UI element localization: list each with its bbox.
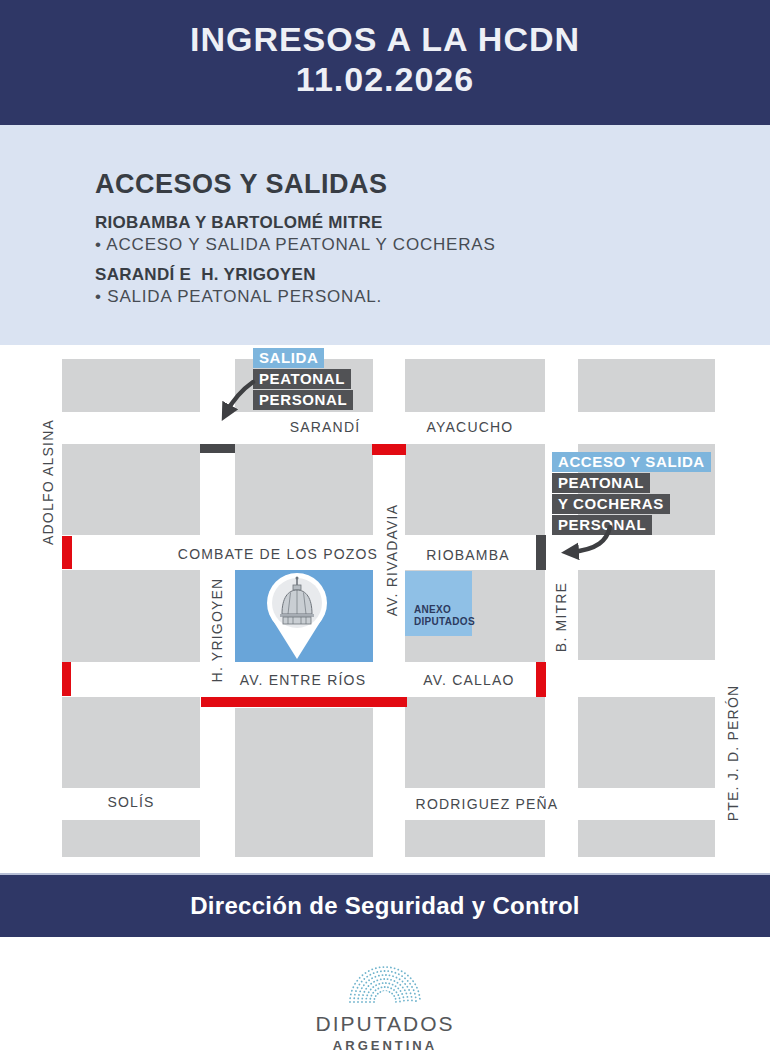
poster-root: INGRESOS A LA HCDN 11.02.2026 ACCESOS Y … [0,0,770,1062]
city-block [578,820,715,857]
closure-marker-entrerios [201,697,407,707]
access-marker-riobamba-mitre [536,535,546,570]
city-block [405,444,545,535]
footer-band: Dirección de Seguridad y Control [0,873,770,937]
callout-salida: SALIDA PEATONAL PERSONAL [253,348,353,410]
arrow-acceso-icon [552,522,622,564]
closure-marker-callao-mitre [536,662,546,697]
access-entry-heading: RIOBAMBA Y BARTOLOMÉ MITRE [95,213,383,233]
street-label-entrerios: AV. ENTRE RÍOS [240,672,367,688]
city-block [578,570,715,660]
exit-marker-sarandi-yrigoyen [200,444,235,453]
closure-marker-rivadavia-sarandi [372,444,406,455]
poster-date: 11.02.2026 [0,59,770,99]
congress-pin-icon [258,571,336,661]
city-block [62,697,200,788]
street-label-peron: PTE. J. D. PERÓN [725,685,741,822]
street-label-combate: COMBATE DE LOS POZOS [178,546,378,562]
arrow-salida-icon [205,378,261,426]
anexo-diputados-block: ANEXO DIPUTADOS [405,571,472,636]
city-block [62,570,200,662]
poster-title: INGRESOS A LA HCDN [0,0,770,59]
anexo-label: ANEXO DIPUTADOS [414,604,475,628]
logo-title: DIPUTADOS [0,1012,770,1036]
city-block [62,359,200,412]
city-block [62,820,200,857]
access-entry-detail: • SALIDA PEATONAL PERSONAL. [95,287,382,307]
header-band: INGRESOS A LA HCDN 11.02.2026 [0,0,770,125]
logo-subtitle: ARGENTINA [0,1038,770,1053]
closure-marker-entrerios-alsina [62,662,71,696]
city-block [235,708,373,857]
access-entry-detail: • ACCESO Y SALIDA PEATONAL Y COCHERAS [95,235,496,255]
closure-marker-combate-alsina [62,536,72,569]
street-label-rivadavia: AV. RIVADAVIA [384,504,400,616]
street-label-ayacucho: AYACUCHO [427,419,514,435]
accesses-panel: ACCESOS Y SALIDAS RIOBAMBA Y BARTOLOMÉ M… [0,125,770,345]
access-entry-heading: SARANDÍ E H. YRIGOYEN [95,265,316,285]
street-label-yrigoyen: H. YRIGOYEN [209,578,225,683]
street-label-alsina: ADOLFO ALSINA [40,419,56,545]
street-label-rodriguezpena: RODRIGUEZ PEÑA [416,796,559,812]
city-block [62,444,200,535]
accesses-title: ACCESOS Y SALIDAS [95,169,388,200]
city-block [405,697,545,788]
hemicycle-logo-icon [335,948,435,1006]
street-label-riobamba: RIOBAMBA [426,547,510,563]
city-block [578,697,715,788]
street-label-callao: AV. CALLAO [423,672,514,688]
diputados-logo: DIPUTADOS ARGENTINA [0,948,770,1053]
city-block [235,444,373,535]
city-block [405,820,545,857]
street-label-mitre: B. MITRE [553,582,569,652]
street-label-sarandi: SARANDÍ [290,419,361,435]
footer-text: Dirección de Seguridad y Control [190,892,580,920]
city-block [578,359,715,412]
street-label-solis: SOLÍS [107,794,154,810]
city-block [405,359,545,412]
